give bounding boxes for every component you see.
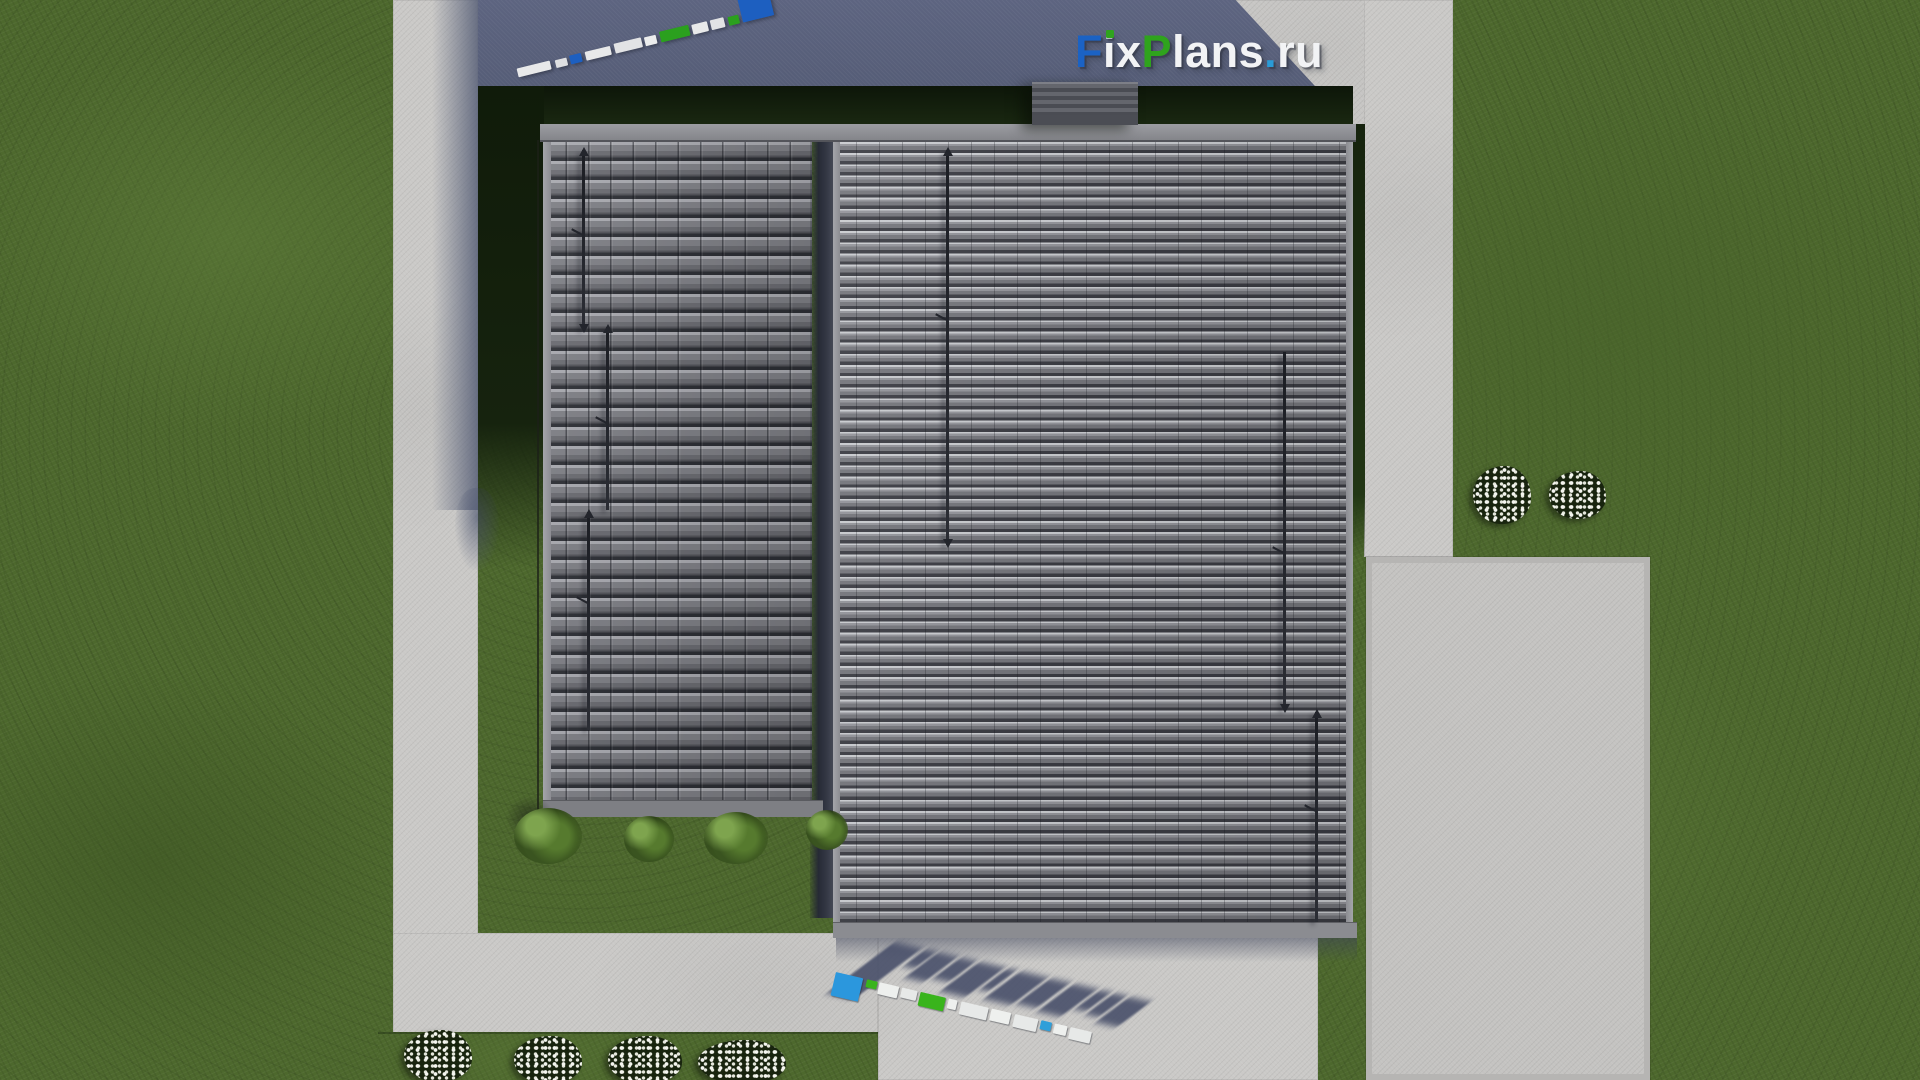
roof-fascia-bottom-left	[543, 800, 823, 817]
logo-letter: ru	[1277, 26, 1323, 78]
logo-i-dot	[1106, 30, 1114, 38]
concrete-driveway	[1366, 557, 1650, 1080]
roof-edge-trim	[543, 142, 551, 802]
flower-cluster	[514, 1036, 582, 1080]
arrow-down-icon	[1280, 704, 1290, 713]
watermark-segment	[1039, 1020, 1052, 1031]
watermark-segment	[865, 979, 878, 989]
bush	[704, 812, 768, 864]
bush	[514, 808, 582, 864]
roof-fascia-bottom-right	[833, 922, 1357, 938]
flower-cluster	[404, 1030, 472, 1080]
aerial-roof-render: FixPlans.ru	[0, 0, 1920, 1080]
roof-snow-guard-line	[946, 150, 949, 545]
logo-letter: .	[1264, 26, 1277, 78]
logo-letter: P	[1142, 26, 1173, 78]
arrow-up-icon	[1312, 709, 1322, 718]
arrow-down-icon	[579, 324, 589, 333]
flower-cluster	[698, 1040, 786, 1080]
concrete-path-right	[1364, 0, 1453, 557]
watermark-segment	[1053, 1023, 1068, 1036]
roof-snow-guard-line	[582, 150, 585, 330]
flower-cluster	[1549, 471, 1606, 519]
watermark-segment	[947, 998, 958, 1010]
flower-cluster	[608, 1036, 682, 1080]
logo-letter: x	[1116, 26, 1142, 78]
fixplans-logo: FixPlans.ru	[1075, 26, 1323, 78]
chimney-vent	[1032, 82, 1138, 125]
roof-fascia-top	[540, 124, 1356, 142]
roof-snow-guard-line	[606, 327, 609, 510]
logo-letter: i	[1103, 26, 1116, 78]
arrow-up-icon	[579, 147, 589, 156]
roof-snow-guard-line	[1315, 712, 1318, 922]
logo-letter: F	[1075, 26, 1103, 78]
bush	[624, 816, 674, 862]
arrow-down-icon	[943, 539, 953, 548]
roof-edge-cable	[537, 140, 539, 816]
bush	[806, 810, 848, 850]
building-shadow-on-path	[432, 0, 478, 510]
roof-edge-trim	[1346, 142, 1353, 923]
roof-snow-guard-line	[587, 512, 590, 730]
roof-snow-guard-line	[1283, 352, 1286, 710]
roof-section-right-tiles	[833, 142, 1353, 923]
logo-letter: lans	[1172, 26, 1264, 78]
watermark-segment	[831, 972, 864, 1002]
roof-edge-trim	[833, 142, 840, 923]
arrow-up-icon	[943, 147, 953, 156]
shadowed-garden-top	[495, 86, 1353, 126]
arrow-up-icon	[603, 324, 613, 333]
shadowed-garden-left	[478, 86, 544, 568]
arrow-up-icon	[584, 509, 594, 518]
hedge-strip-right	[1353, 124, 1365, 560]
flower-cluster	[1473, 466, 1531, 524]
